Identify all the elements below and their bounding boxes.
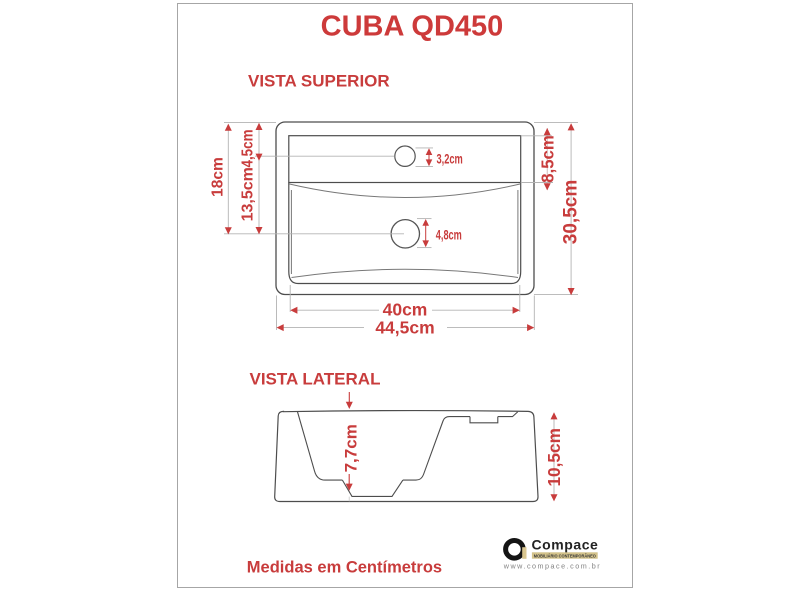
svg-text:VISTA SUPERIOR: VISTA SUPERIOR <box>248 72 390 91</box>
svg-text:Medidas em Centímetros: Medidas em Centímetros <box>247 559 442 577</box>
svg-text:VISTA LATERAL: VISTA LATERAL <box>250 370 381 389</box>
svg-text:7,7cm: 7,7cm <box>341 424 360 472</box>
svg-text:4,5cm: 4,5cm <box>239 130 256 168</box>
svg-text:44,5cm: 44,5cm <box>375 317 434 337</box>
svg-text:Compace: Compace <box>532 537 599 553</box>
svg-text:30,5cm: 30,5cm <box>561 180 582 244</box>
svg-text:8,5cm: 8,5cm <box>538 135 558 183</box>
svg-text:18cm: 18cm <box>209 157 226 197</box>
svg-text:10,5cm: 10,5cm <box>544 428 564 487</box>
svg-text:MOBILIÁRIO CONTEMPORÂNEO: MOBILIÁRIO CONTEMPORÂNEO <box>534 553 597 558</box>
svg-text:www.compace.com.br: www.compace.com.br <box>503 562 601 571</box>
svg-text:3,2cm: 3,2cm <box>437 150 463 166</box>
svg-text:13,5cm: 13,5cm <box>239 167 256 221</box>
svg-text:CUBA QD450: CUBA QD450 <box>321 11 504 43</box>
svg-text:4,8cm: 4,8cm <box>436 226 462 242</box>
